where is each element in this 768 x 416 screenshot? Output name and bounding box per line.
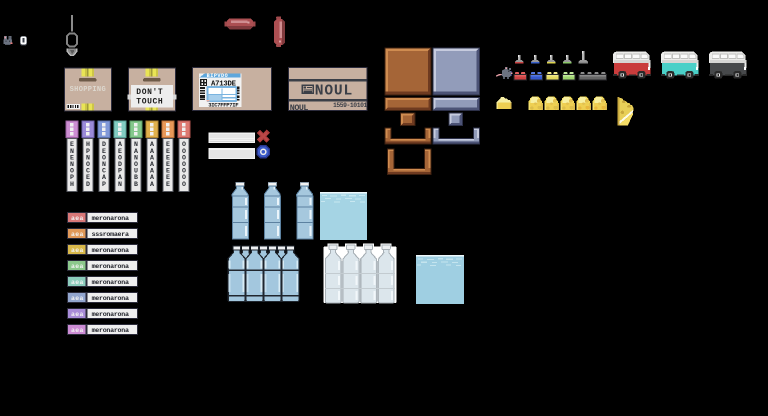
svg-text:ENENOPH: ENENOPH bbox=[70, 141, 74, 188]
svg-text:aea: aea bbox=[71, 215, 84, 222]
svg-text:AAAAAAA: AAAAAAA bbox=[150, 141, 154, 188]
svg-text:meronarona: meronarona bbox=[92, 327, 129, 334]
svg-text:meronarona: meronarona bbox=[92, 215, 129, 222]
svg-text:EEEEEEE: EEEEEEE bbox=[166, 141, 170, 188]
svg-text:AEODPAN: AEODPAN bbox=[118, 141, 122, 188]
svg-text:aea: aea bbox=[71, 231, 84, 238]
svg-text:aea: aea bbox=[71, 279, 84, 286]
svg-text:NOUL: NOUL bbox=[290, 103, 309, 113]
svg-text:meronarona: meronarona bbox=[92, 295, 129, 302]
svg-text:aea: aea bbox=[71, 263, 84, 270]
svg-text:aea: aea bbox=[71, 295, 84, 302]
svg-text:3IC7FFP7IF: 3IC7FFP7IF bbox=[208, 102, 239, 109]
svg-text:BIPVDO: BIPVDO bbox=[207, 73, 229, 79]
svg-text:meronarona: meronarona bbox=[92, 263, 129, 270]
svg-text:aea: aea bbox=[71, 311, 84, 318]
svg-text:TOUCH: TOUCH bbox=[136, 98, 163, 107]
svg-text:aea: aea bbox=[71, 327, 84, 334]
svg-text:1559-10101: 1559-10101 bbox=[333, 102, 367, 109]
svg-text:meronarona: meronarona bbox=[92, 311, 129, 318]
svg-text:meronarona: meronarona bbox=[92, 247, 129, 254]
svg-text:DEONCAP: DEONCAP bbox=[102, 141, 106, 188]
svg-text:OOOOOOO: OOOOOOO bbox=[182, 141, 186, 188]
svg-text:DON'T: DON'T bbox=[136, 88, 163, 97]
svg-text:NOUL: NOUL bbox=[315, 83, 353, 99]
svg-text:sssromaera: sssromaera bbox=[92, 231, 129, 238]
svg-text:aea: aea bbox=[71, 247, 84, 254]
svg-text:HPNOCED: HPNOCED bbox=[86, 141, 90, 188]
svg-text:NANOUBB: NANOUBB bbox=[134, 141, 138, 188]
svg-text:meronarona: meronarona bbox=[92, 279, 129, 286]
svg-text:SHOPPING: SHOPPING bbox=[70, 86, 106, 94]
